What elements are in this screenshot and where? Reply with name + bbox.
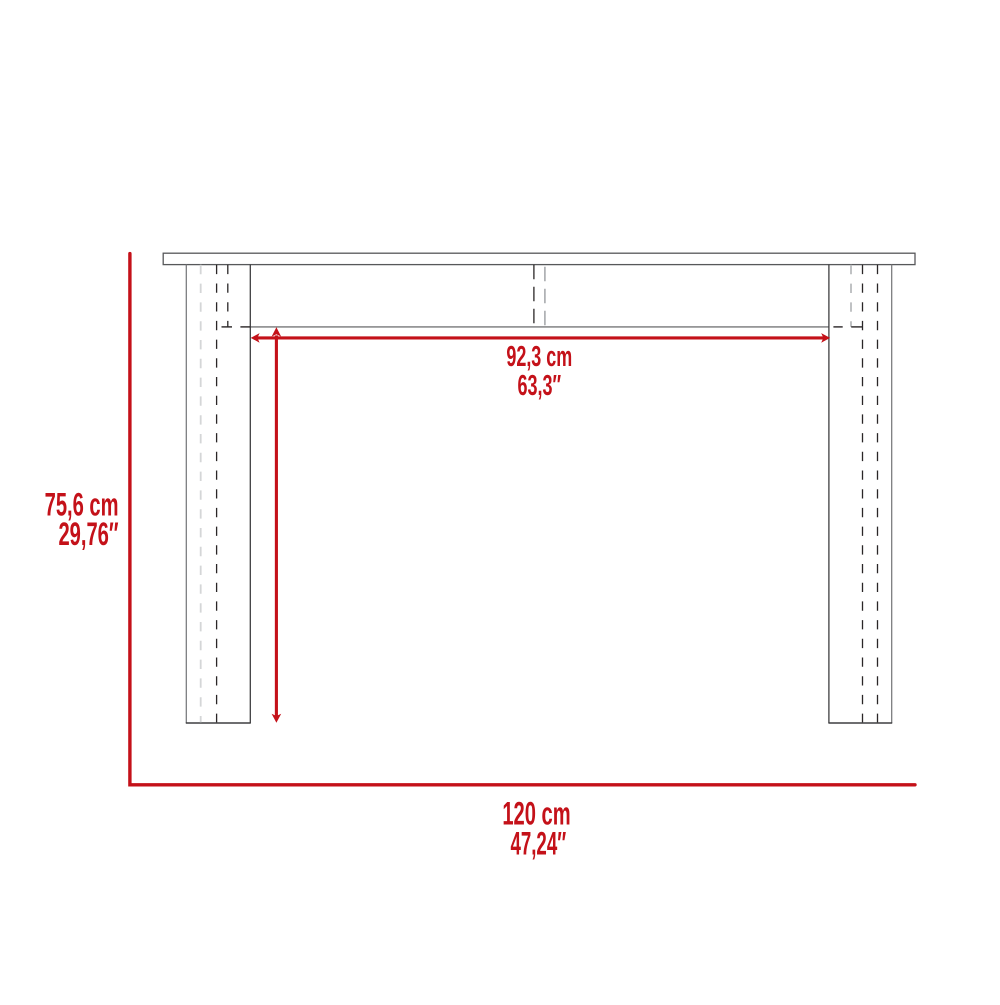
svg-text:29,76″: 29,76″ [58,516,118,552]
svg-text:63,3″: 63,3″ [518,370,562,402]
svg-text:92,3 cm: 92,3 cm [506,341,572,373]
svg-text:47,24″: 47,24″ [510,825,566,862]
